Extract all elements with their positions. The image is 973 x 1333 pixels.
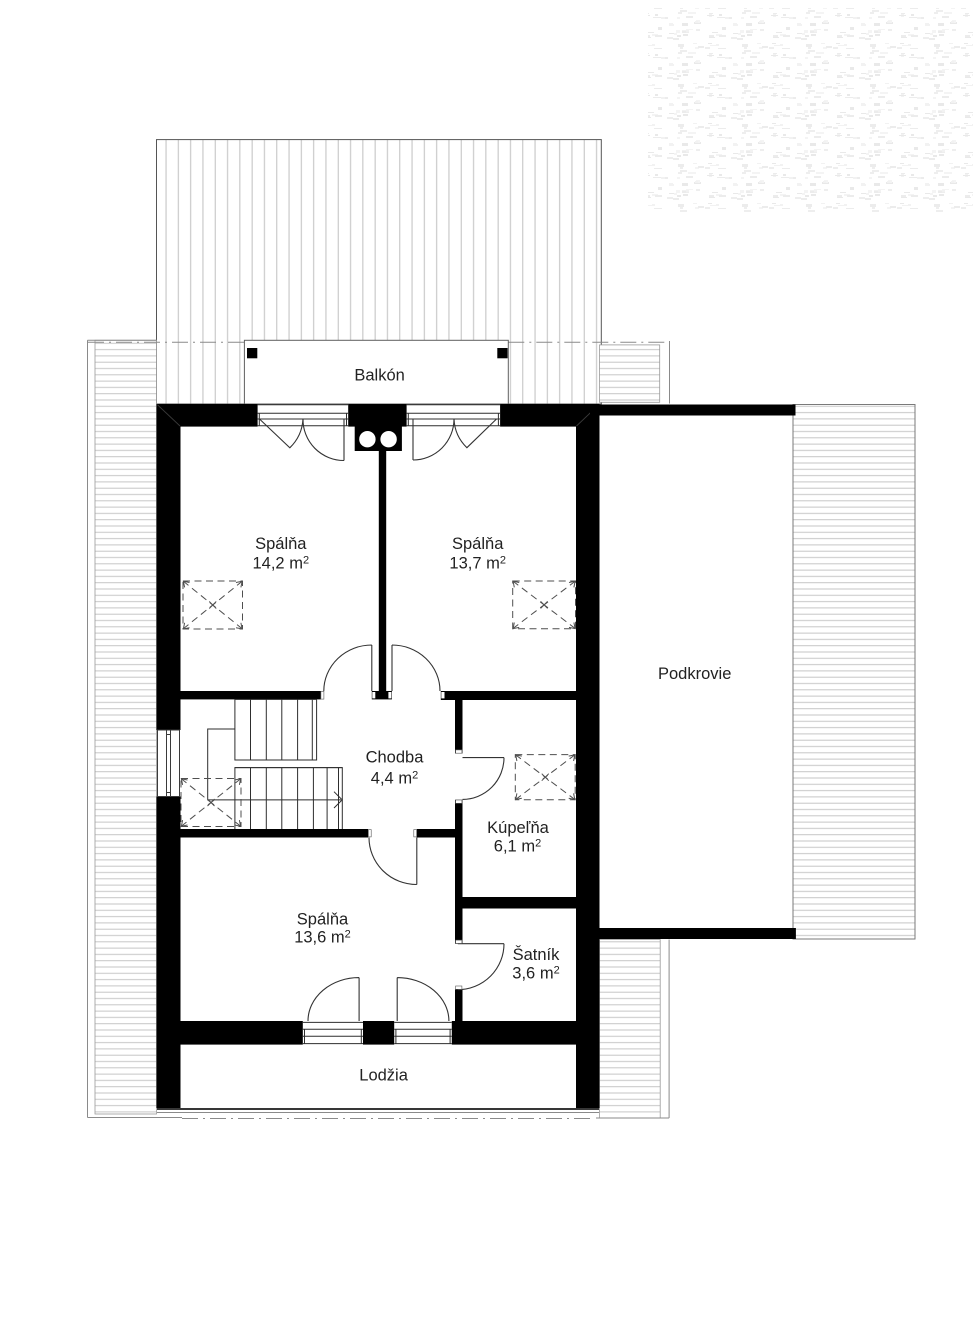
svg-text:Kúpeľňa: Kúpeľňa xyxy=(487,819,550,837)
svg-text:3,6 m2: 3,6 m2 xyxy=(512,965,559,983)
svg-text:Spálňa: Spálňa xyxy=(255,535,307,553)
svg-text:Šatník: Šatník xyxy=(513,945,561,964)
svg-text:4,4 m2: 4,4 m2 xyxy=(371,770,418,788)
svg-text:13,7 m2: 13,7 m2 xyxy=(449,555,506,573)
svg-text:6,1 m2: 6,1 m2 xyxy=(494,838,541,856)
svg-text:Podkrovie: Podkrovie xyxy=(658,665,731,683)
svg-text:14,2 m2: 14,2 m2 xyxy=(253,555,310,573)
svg-text:Lodžia: Lodžia xyxy=(359,1066,408,1084)
svg-text:Spálňa: Spálňa xyxy=(452,535,504,553)
svg-text:Balkón: Balkón xyxy=(354,367,404,385)
svg-text:Spálňa: Spálňa xyxy=(297,911,349,929)
svg-text:13,6 m2: 13,6 m2 xyxy=(294,929,351,947)
svg-text:Chodba: Chodba xyxy=(366,749,425,767)
